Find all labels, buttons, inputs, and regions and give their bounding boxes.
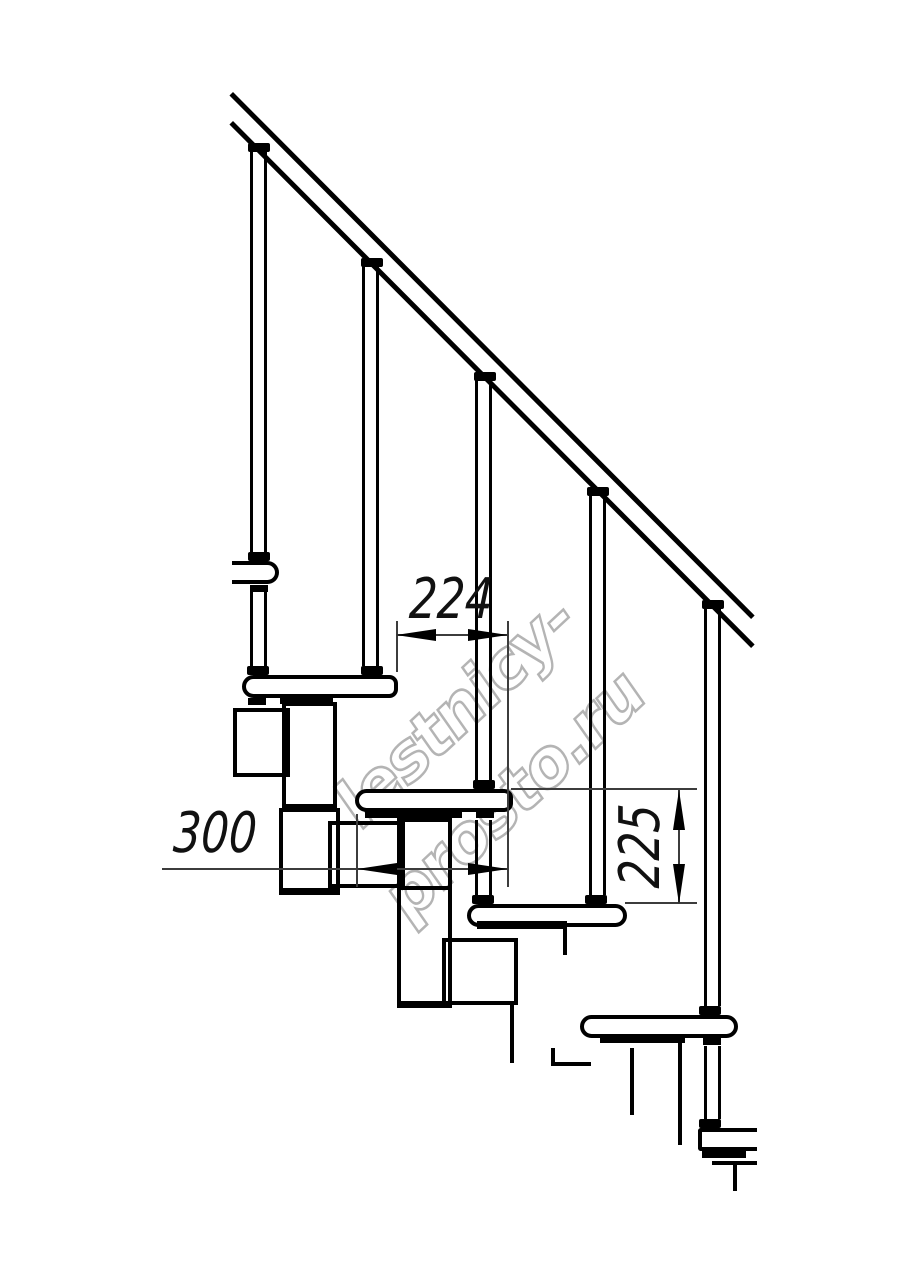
extension-line xyxy=(625,902,697,904)
baluster-rail-connector-icon xyxy=(474,372,496,381)
stringer-connector-box xyxy=(442,938,518,1005)
stringer-cutoff-line xyxy=(551,1062,591,1066)
dimension-label-riser-height: 225 xyxy=(613,792,669,900)
tread-mount-strip xyxy=(365,810,462,818)
extension-line xyxy=(511,788,697,790)
staircase-technical-drawing: lestnicy-prosto.ru xyxy=(0,0,914,1280)
baluster-rail-connector-icon xyxy=(248,143,270,152)
baluster-5-upper xyxy=(704,607,721,1006)
tread-2 xyxy=(355,789,513,812)
baluster-5-lower xyxy=(704,1046,721,1119)
baluster-passthrough-fitting-icon xyxy=(248,698,266,705)
stringer-module-joint-line xyxy=(397,886,452,890)
arrow-right-icon xyxy=(468,863,508,875)
baluster-rail-connector-icon xyxy=(361,258,383,267)
stringer-connector-box xyxy=(328,821,405,888)
stringer-cutoff-line xyxy=(678,1043,682,1145)
baluster-tread-connector-icon xyxy=(585,895,607,904)
stringer-cutoff-line xyxy=(733,1161,737,1191)
baluster-1-upper xyxy=(250,150,267,552)
baluster-1-lower xyxy=(250,592,267,666)
dimension-label-tread-run: 224 xyxy=(408,572,492,628)
baluster-rail-connector-icon xyxy=(587,487,609,496)
baluster-tread-connector-icon xyxy=(472,895,494,904)
baluster-tread-connector-icon xyxy=(699,1006,721,1015)
baluster-tread-connector-icon xyxy=(473,780,495,789)
baluster-rail-connector-icon xyxy=(702,600,724,609)
stringer-module-box xyxy=(282,702,337,808)
arrow-down-icon xyxy=(673,864,685,904)
tread-mount-strip xyxy=(280,696,333,704)
dimension-line-300 xyxy=(162,868,508,870)
tread-mount-strip xyxy=(702,1149,746,1158)
dimension-label-tread-depth: 300 xyxy=(172,806,256,862)
baluster-4 xyxy=(589,494,606,895)
baluster-3-lower xyxy=(475,820,492,895)
baluster-tread-connector-icon xyxy=(248,552,270,561)
tread-1 xyxy=(242,675,398,698)
extension-line xyxy=(507,621,509,887)
tread-upper-cut xyxy=(232,561,279,584)
tread-mount-strip xyxy=(600,1035,685,1043)
tread-5-cut xyxy=(698,1128,757,1151)
baluster-tread-connector-icon xyxy=(247,666,269,675)
stringer-cutoff-line xyxy=(510,1005,514,1063)
arrow-left-icon xyxy=(357,863,397,875)
extension-line xyxy=(356,814,358,887)
stringer-cutoff-line xyxy=(563,929,567,955)
stringer-cutoff-line xyxy=(630,1048,634,1115)
baluster-2 xyxy=(362,264,379,666)
handrail-upper-line xyxy=(229,92,754,619)
tread-mount-strip xyxy=(477,921,567,929)
baluster-tread-connector-icon xyxy=(699,1119,721,1128)
baluster-tread-connector-icon xyxy=(361,666,383,675)
baluster-passthrough-fitting-icon xyxy=(703,1038,721,1045)
arrow-up-icon xyxy=(673,790,685,830)
baluster-passthrough-fitting-icon xyxy=(476,811,494,818)
baluster-passthrough-fitting-icon xyxy=(250,585,268,592)
